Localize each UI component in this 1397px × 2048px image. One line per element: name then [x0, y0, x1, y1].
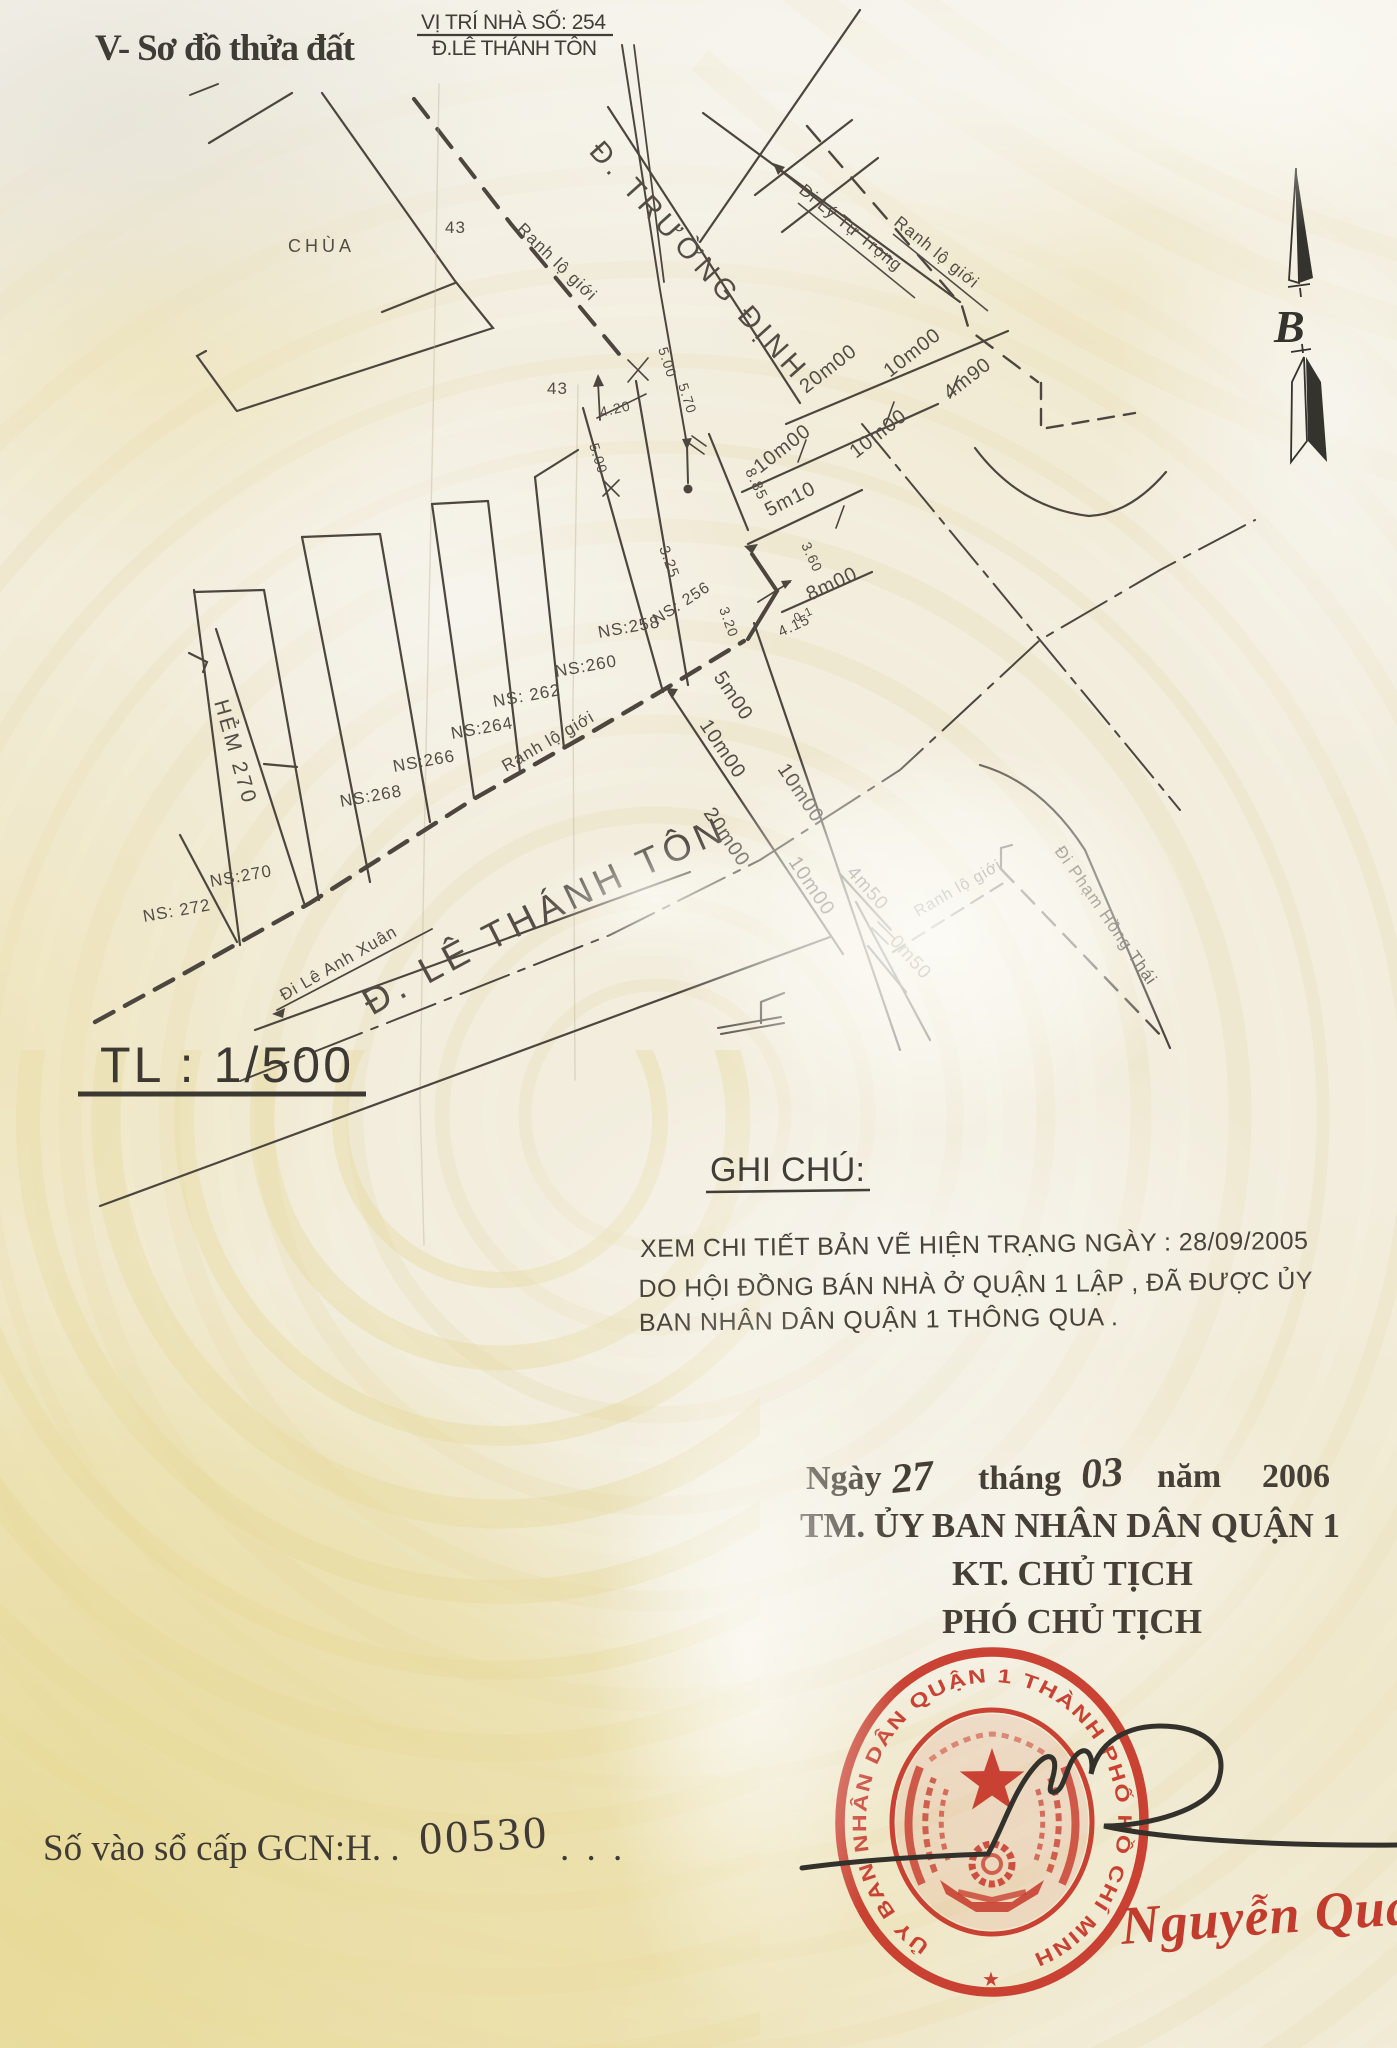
svg-text:tháng: tháng	[978, 1460, 1061, 1497]
svg-text:43: 43	[547, 379, 568, 398]
svg-text:PHÓ CHỦ TỊCH: PHÓ CHỦ TỊCH	[942, 1601, 1202, 1641]
svg-text:00530: 00530	[418, 1806, 550, 1864]
svg-text:Đ.LÊ THÁNH TÔN: Đ.LÊ THÁNH TÔN	[432, 37, 598, 60]
svg-text:2006: 2006	[1262, 1458, 1330, 1495]
svg-text:GHI CHÚ:: GHI CHÚ:	[710, 1151, 866, 1189]
svg-text:27: 27	[888, 1453, 938, 1503]
svg-text:CHÙA: CHÙA	[288, 235, 355, 256]
svg-text:03: 03	[1079, 1449, 1124, 1498]
svg-text:★: ★	[982, 1969, 1000, 1991]
svg-text:43: 43	[445, 218, 466, 237]
svg-text:V- Sơ đồ thửa đất: V- Sơ đồ thửa đất	[95, 28, 356, 69]
svg-text:Số vào sổ cấp GCN:H. .: Số vào sổ cấp GCN:H. .	[43, 1828, 400, 1869]
svg-text:năm: năm	[1157, 1458, 1221, 1495]
svg-text:KT. CHỦ TỊCH: KT. CHỦ TỊCH	[952, 1553, 1193, 1593]
svg-text:VỊ TRÍ NHÀ SỐ: 254: VỊ TRÍ NHÀ SỐ: 254	[421, 10, 607, 34]
svg-text:TL : 1/500: TL : 1/500	[100, 1037, 353, 1093]
svg-text:B: B	[1273, 301, 1305, 352]
